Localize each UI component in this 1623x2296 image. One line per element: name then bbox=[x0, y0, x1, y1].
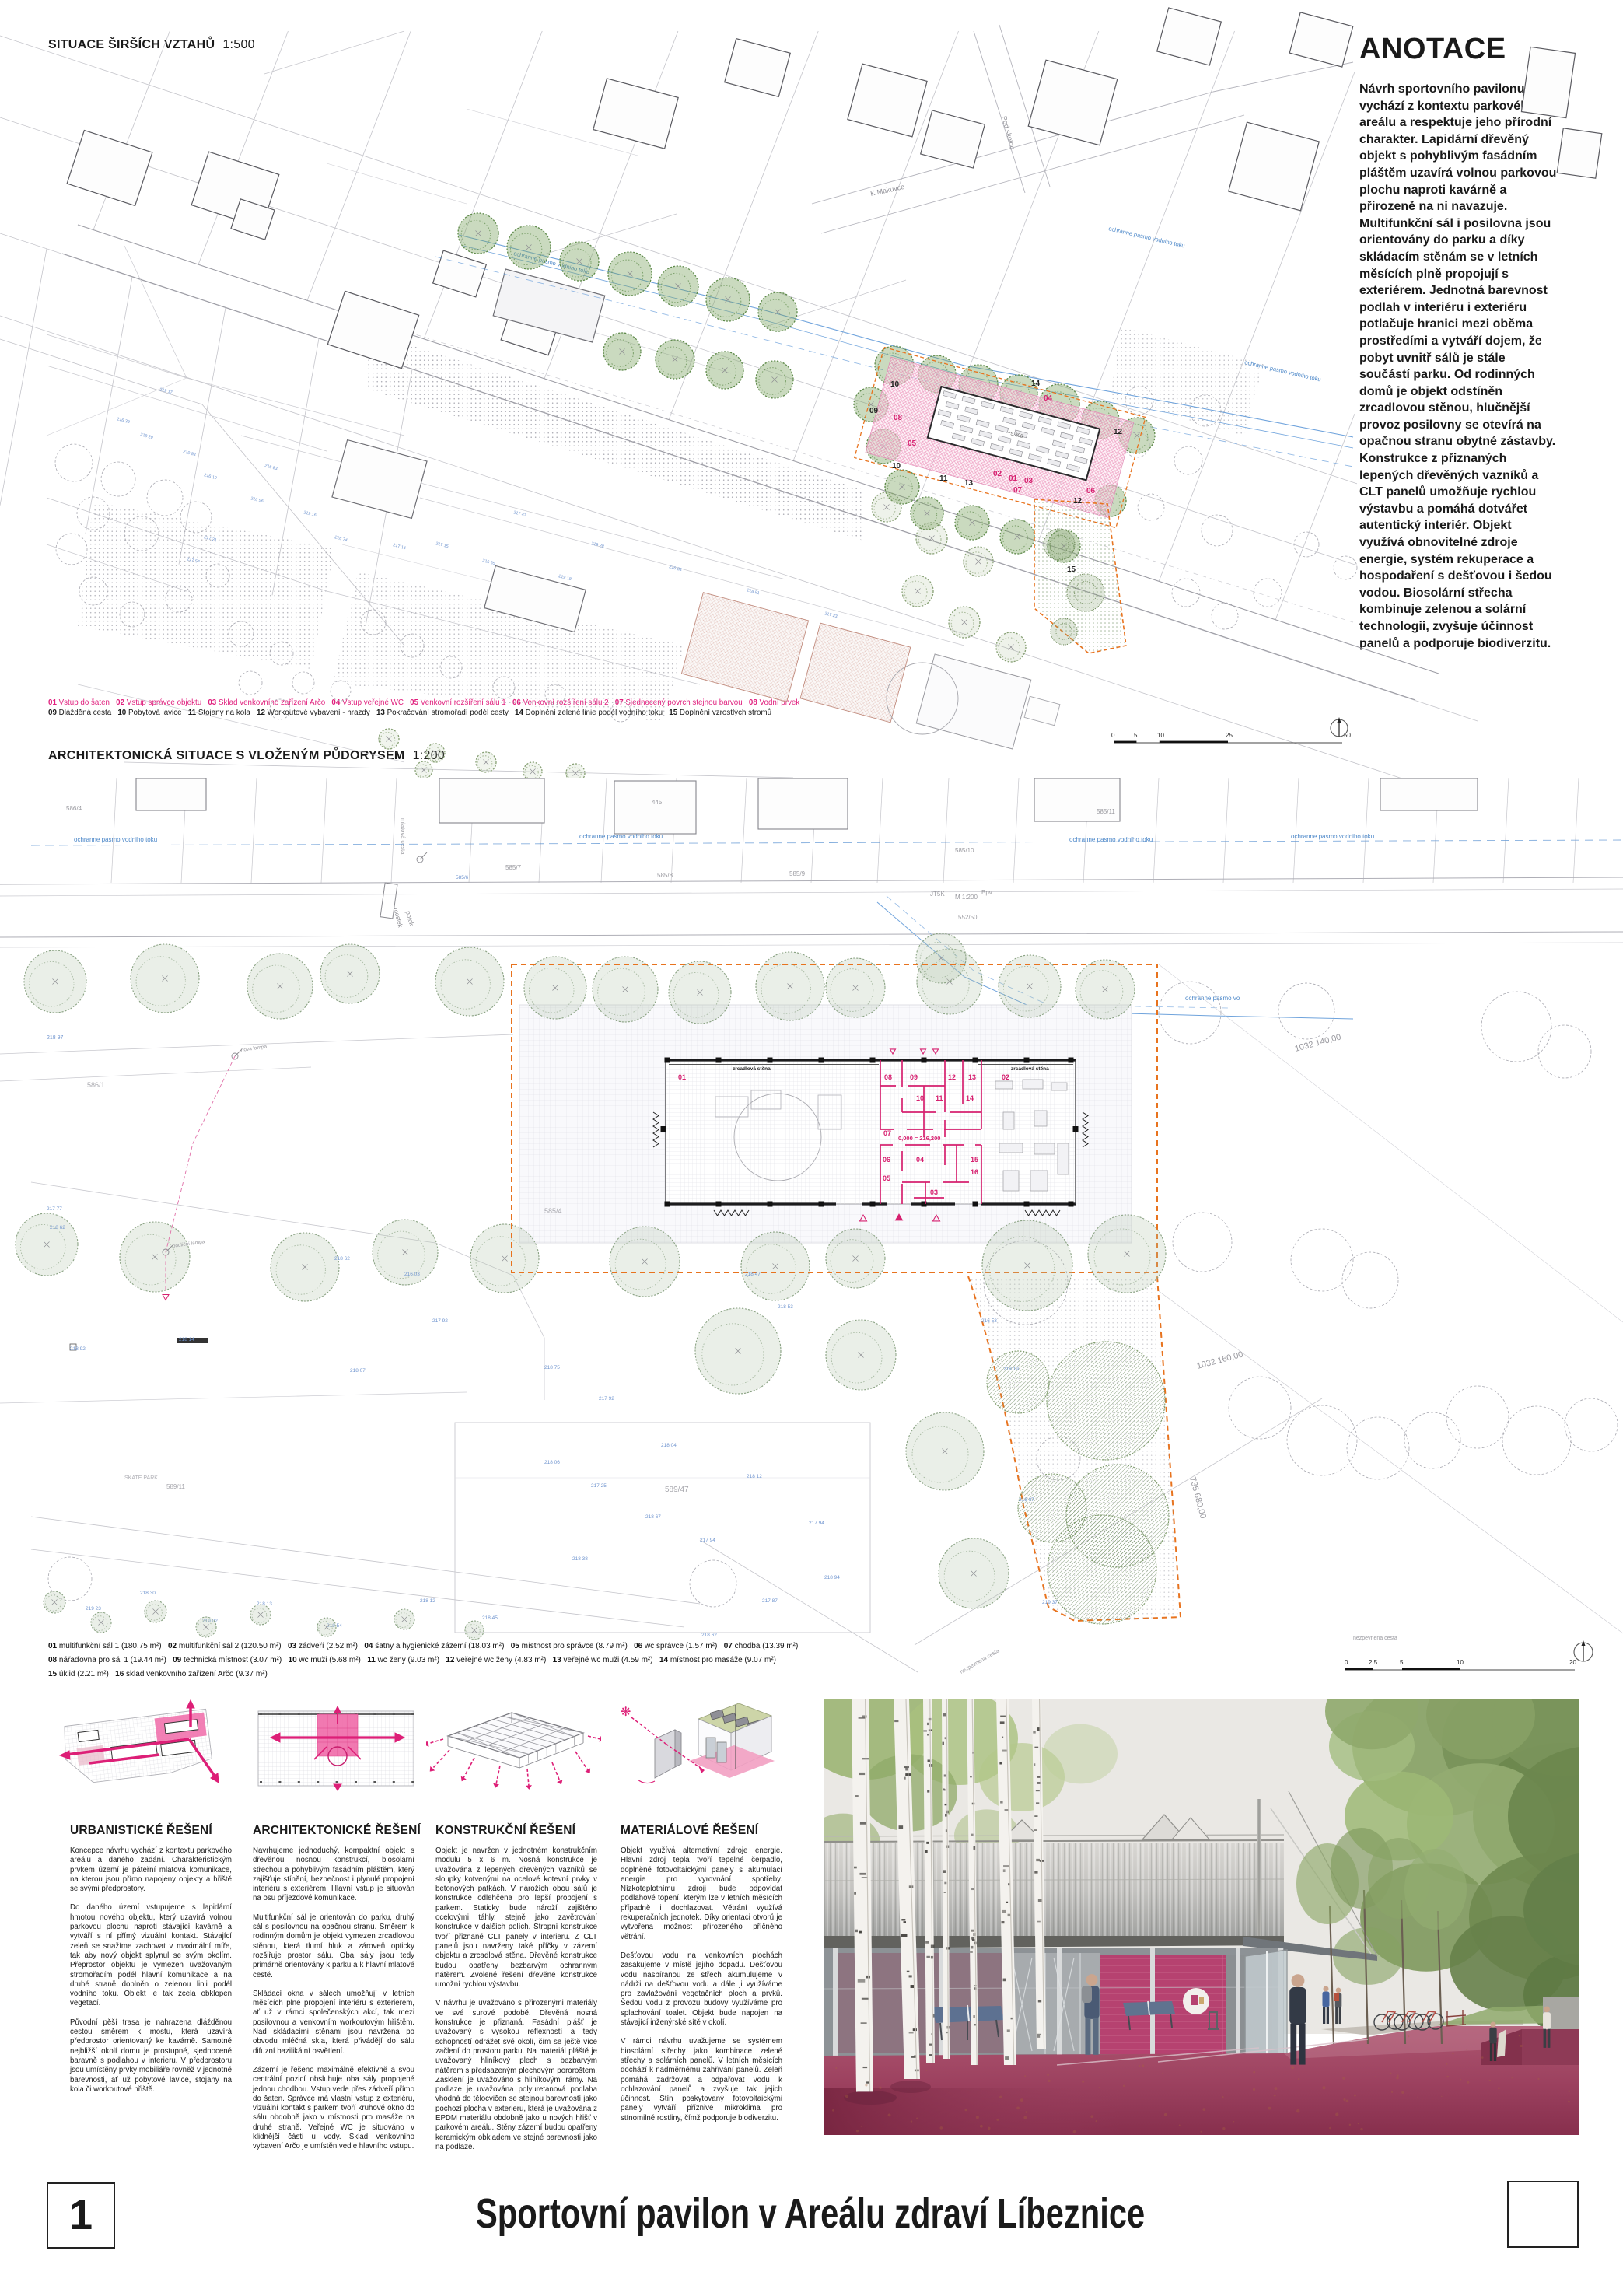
svg-text:nova lampa: nova lampa bbox=[240, 1044, 268, 1053]
svg-text:585/6: 585/6 bbox=[456, 875, 469, 880]
svg-text:12: 12 bbox=[948, 1073, 956, 1081]
svg-text:735 680,00: 735 680,00 bbox=[1188, 1476, 1208, 1520]
svg-text:JT5K: JT5K bbox=[930, 891, 945, 898]
svg-text:ochranne pasmo vodniho toku: ochranne pasmo vodniho toku bbox=[1069, 836, 1153, 843]
svg-text:10: 10 bbox=[890, 380, 900, 389]
svg-text:10: 10 bbox=[1157, 732, 1164, 739]
svg-text:218 06: 218 06 bbox=[544, 1460, 560, 1465]
svg-text:586/4: 586/4 bbox=[66, 805, 82, 812]
svg-text:SKATE PARK: SKATE PARK bbox=[124, 1475, 158, 1481]
svg-text:2,5: 2,5 bbox=[1369, 1659, 1378, 1666]
svg-text:05: 05 bbox=[883, 1174, 890, 1182]
svg-text:218 62: 218 62 bbox=[701, 1633, 717, 1638]
svg-text:218 67: 218 67 bbox=[645, 1514, 661, 1520]
svg-text:10: 10 bbox=[892, 462, 901, 471]
svg-text:25: 25 bbox=[1226, 732, 1233, 739]
svg-text:218 47: 218 47 bbox=[745, 1272, 761, 1277]
svg-text:0: 0 bbox=[1111, 732, 1115, 739]
svg-text:585/7: 585/7 bbox=[505, 864, 522, 871]
svg-text:1032 160,00: 1032 160,00 bbox=[1196, 1349, 1244, 1370]
svg-text:218 38: 218 38 bbox=[572, 1556, 588, 1562]
svg-text:1032 140,00: 1032 140,00 bbox=[1294, 1032, 1342, 1053]
svg-text:07: 07 bbox=[1013, 486, 1023, 495]
svg-text:217 77: 217 77 bbox=[47, 1206, 62, 1212]
svg-text:219 37: 219 37 bbox=[1042, 1600, 1058, 1605]
svg-text:07: 07 bbox=[883, 1129, 891, 1137]
svg-text:216 56: 216 56 bbox=[250, 496, 264, 504]
svg-text:218 62: 218 62 bbox=[334, 1256, 350, 1262]
svg-text:09: 09 bbox=[910, 1073, 918, 1081]
svg-text:217 94: 217 94 bbox=[809, 1521, 824, 1526]
svg-text:219 93: 219 93 bbox=[182, 450, 196, 457]
svg-text:nezpevnena cesta: nezpevnena cesta bbox=[1353, 1636, 1397, 1641]
svg-text:218 94: 218 94 bbox=[824, 1575, 840, 1580]
svg-text:218 92: 218 92 bbox=[70, 1346, 86, 1352]
svg-text:❋: ❋ bbox=[621, 1706, 631, 1719]
svg-text:02: 02 bbox=[1002, 1073, 1009, 1081]
svg-text:219 28: 219 28 bbox=[590, 541, 604, 549]
svg-text:5: 5 bbox=[1400, 1659, 1404, 1666]
svg-text:218 19: 218 19 bbox=[1003, 1367, 1019, 1372]
svg-text:218 97: 218 97 bbox=[47, 1035, 64, 1041]
svg-text:218 14: 218 14 bbox=[179, 1337, 194, 1342]
svg-text:09: 09 bbox=[869, 407, 879, 415]
svg-text:zrcadlová stěna: zrcadlová stěna bbox=[733, 1066, 771, 1072]
svg-text:218 29: 218 29 bbox=[139, 432, 153, 440]
svg-text:08: 08 bbox=[884, 1073, 892, 1081]
svg-text:216 38: 216 38 bbox=[116, 417, 130, 425]
svg-text:0: 0 bbox=[1345, 1659, 1348, 1666]
svg-text:217 25: 217 25 bbox=[591, 1483, 607, 1489]
svg-text:ochranne pasmo vodniho toku: ochranne pasmo vodniho toku bbox=[579, 833, 663, 840]
svg-text:219 23: 219 23 bbox=[86, 1606, 101, 1612]
svg-text:589/11: 589/11 bbox=[166, 1483, 185, 1490]
svg-text:zrcadlová stěna: zrcadlová stěna bbox=[1011, 1066, 1049, 1072]
svg-text:217 23: 217 23 bbox=[824, 611, 838, 619]
svg-text:06: 06 bbox=[1086, 487, 1096, 495]
svg-text:12: 12 bbox=[1114, 428, 1123, 436]
svg-text:217 14: 217 14 bbox=[392, 543, 406, 551]
svg-text:10: 10 bbox=[916, 1094, 924, 1102]
svg-text:16: 16 bbox=[971, 1168, 978, 1176]
svg-text:218 04: 218 04 bbox=[661, 1443, 677, 1448]
svg-text:216 74: 216 74 bbox=[334, 535, 348, 543]
svg-text:218 07: 218 07 bbox=[350, 1368, 366, 1374]
svg-text:216 53: 216 53 bbox=[981, 1318, 997, 1324]
svg-text:218 53: 218 53 bbox=[778, 1304, 793, 1310]
svg-text:585/11: 585/11 bbox=[1097, 808, 1115, 815]
svg-text:219 17: 219 17 bbox=[159, 387, 173, 395]
svg-text:Bpv: Bpv bbox=[981, 889, 992, 896]
svg-text:216 65: 216 65 bbox=[481, 558, 495, 566]
svg-text:218 45: 218 45 bbox=[482, 1615, 498, 1621]
svg-text:217 92: 217 92 bbox=[432, 1318, 448, 1324]
svg-text:5: 5 bbox=[1134, 732, 1138, 739]
svg-text:08: 08 bbox=[894, 414, 903, 422]
svg-text:ochranne pasmo vodniho toku: ochranne pasmo vodniho toku bbox=[74, 836, 157, 843]
svg-text:50: 50 bbox=[1344, 732, 1351, 739]
svg-text:0,000 = 216,200: 0,000 = 216,200 bbox=[898, 1135, 940, 1142]
svg-text:K Makuvce: K Makuvce bbox=[869, 183, 905, 198]
svg-text:nezpevnena cesta: nezpevnena cesta bbox=[960, 1648, 1001, 1675]
svg-text:445: 445 bbox=[652, 799, 663, 806]
svg-text:04: 04 bbox=[916, 1156, 924, 1164]
svg-text:12: 12 bbox=[1073, 497, 1083, 506]
svg-text:potok: potok bbox=[404, 910, 415, 927]
svg-text:M 1:200: M 1:200 bbox=[955, 894, 978, 901]
svg-text:03: 03 bbox=[1024, 477, 1034, 485]
svg-text:216 19: 216 19 bbox=[203, 473, 217, 481]
svg-text:216 83: 216 83 bbox=[264, 464, 278, 471]
svg-text:589/47: 589/47 bbox=[665, 1486, 689, 1494]
svg-text:10: 10 bbox=[1457, 1659, 1464, 1666]
svg-text:218 75: 218 75 bbox=[544, 1365, 560, 1370]
svg-text:14: 14 bbox=[966, 1094, 974, 1102]
svg-text:217 87: 217 87 bbox=[762, 1598, 778, 1604]
svg-text:mlatová cesta: mlatová cesta bbox=[400, 818, 407, 855]
svg-text:218 62: 218 62 bbox=[50, 1225, 65, 1230]
svg-text:01: 01 bbox=[678, 1073, 686, 1081]
svg-text:Pod skolou: Pod skolou bbox=[1000, 115, 1016, 151]
svg-text:05: 05 bbox=[908, 439, 917, 448]
svg-text:ochranne pasmo vodniho toku: ochranne pasmo vodniho toku bbox=[1108, 225, 1186, 249]
svg-text:585/10: 585/10 bbox=[955, 847, 974, 854]
svg-text:15: 15 bbox=[971, 1156, 978, 1164]
svg-text:217 15: 217 15 bbox=[435, 541, 449, 549]
svg-text:ochranne pasmo vodniho toku: ochranne pasmo vodniho toku bbox=[1291, 833, 1374, 840]
svg-text:13: 13 bbox=[964, 479, 974, 488]
svg-text:216 83: 216 83 bbox=[668, 565, 682, 572]
svg-text:552/50: 552/50 bbox=[958, 914, 978, 921]
svg-text:11: 11 bbox=[939, 474, 948, 483]
svg-text:02: 02 bbox=[993, 470, 1002, 478]
svg-text:ochranne pasmo vo: ochranne pasmo vo bbox=[1185, 995, 1240, 1002]
svg-text:03: 03 bbox=[930, 1188, 938, 1196]
svg-text:14: 14 bbox=[1031, 380, 1041, 388]
svg-text:219 16: 219 16 bbox=[303, 510, 317, 518]
svg-text:585/9: 585/9 bbox=[789, 870, 806, 877]
svg-text:218 30: 218 30 bbox=[140, 1591, 156, 1596]
svg-text:218 12: 218 12 bbox=[747, 1474, 762, 1479]
svg-text:585/8: 585/8 bbox=[657, 872, 673, 879]
svg-text:04: 04 bbox=[1044, 394, 1053, 403]
svg-text:217 94: 217 94 bbox=[700, 1538, 715, 1543]
svg-text:216 03: 216 03 bbox=[404, 1272, 420, 1277]
svg-text:13: 13 bbox=[968, 1073, 976, 1081]
svg-text:01: 01 bbox=[1009, 474, 1018, 483]
svg-text:11: 11 bbox=[936, 1094, 943, 1102]
svg-text:15: 15 bbox=[1067, 565, 1076, 574]
svg-text:219 18: 219 18 bbox=[558, 574, 572, 582]
svg-text:06: 06 bbox=[883, 1156, 890, 1164]
svg-text:586/1: 586/1 bbox=[87, 1081, 105, 1089]
svg-text:218 07: 218 07 bbox=[1019, 1497, 1034, 1503]
svg-text:217 47: 217 47 bbox=[512, 510, 526, 518]
svg-text:585/4: 585/4 bbox=[544, 1207, 562, 1215]
svg-text:218 12: 218 12 bbox=[420, 1598, 435, 1604]
svg-text:20: 20 bbox=[1569, 1659, 1576, 1666]
svg-text:217 92: 217 92 bbox=[599, 1396, 614, 1402]
